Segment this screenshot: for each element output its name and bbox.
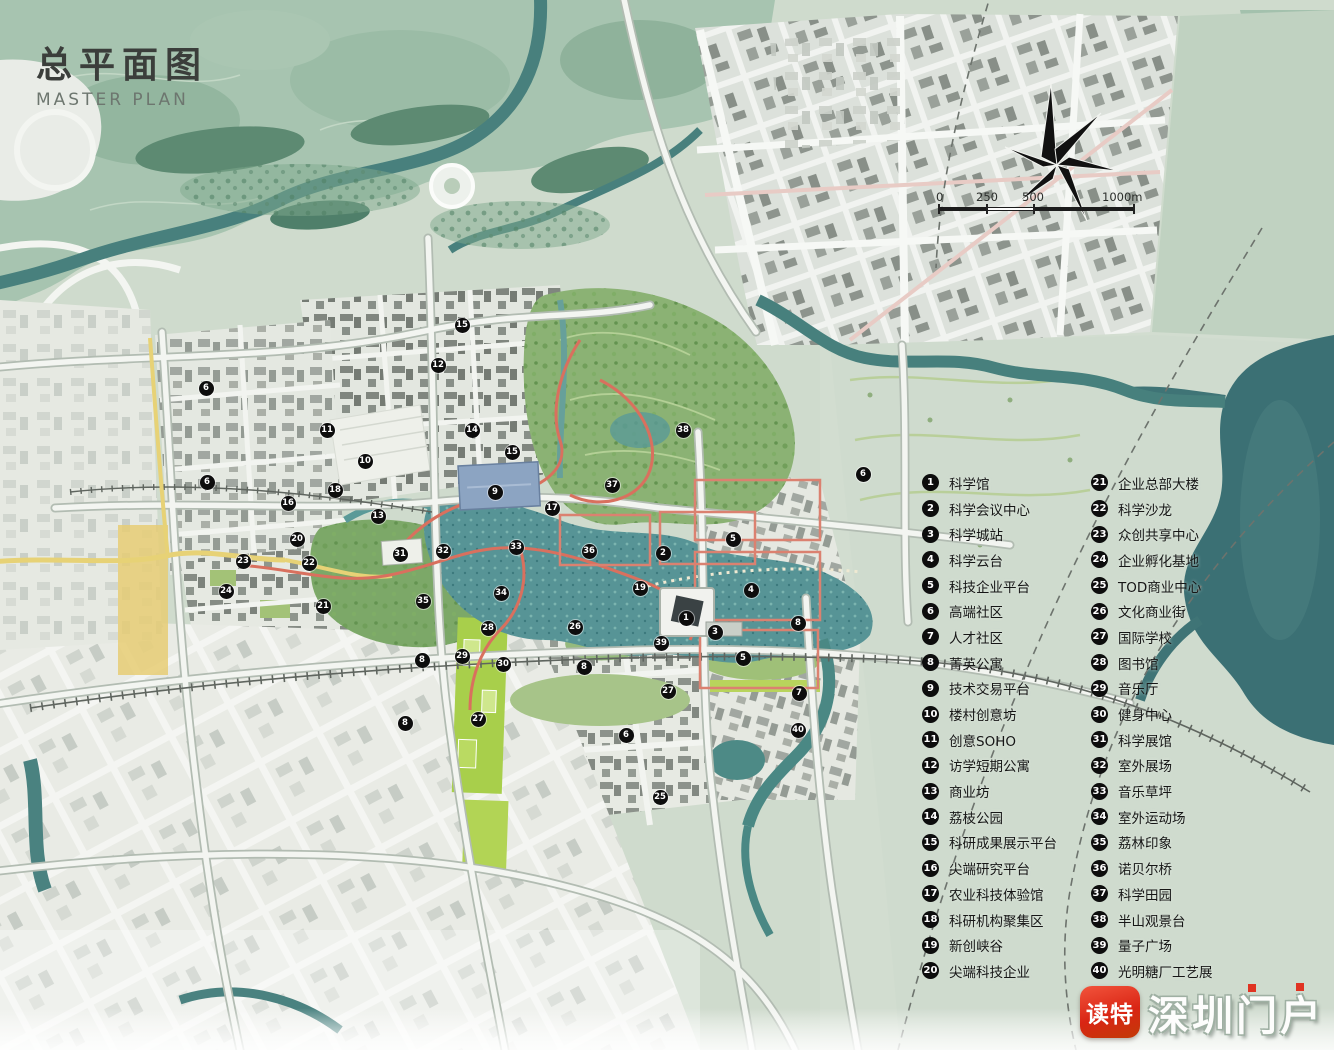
- legend-label: TOD商业中心: [1118, 576, 1201, 596]
- map-marker-16: 16: [281, 496, 296, 511]
- legend-label: 访学短期公寓: [949, 755, 1030, 775]
- map-marker-7: 7: [792, 686, 807, 701]
- map-marker-21: 21: [316, 599, 331, 614]
- map-marker-5: 5: [726, 532, 741, 547]
- map-marker-27: 27: [471, 712, 486, 727]
- legend-label: 高端社区: [949, 601, 1003, 621]
- legend-number-badge: 24: [1091, 551, 1108, 568]
- map-marker-11: 11: [320, 423, 335, 438]
- legend-label: 室外运动场: [1118, 807, 1186, 827]
- legend-item-23: 23众创共享中心: [1091, 521, 1213, 547]
- map-marker-22: 22: [302, 556, 317, 571]
- legend-number-badge: 4: [922, 551, 939, 568]
- map-marker-18: 18: [328, 483, 343, 498]
- legend-label: 菁英公寓: [949, 653, 1003, 673]
- legend-label: 科学沙龙: [1118, 499, 1172, 519]
- north-arrow-icon: [995, 75, 1125, 254]
- legend-label: 科学展馆: [1118, 730, 1172, 750]
- legend-label: 音乐厅: [1118, 678, 1159, 698]
- legend-item-8: 8菁英公寓: [922, 650, 1057, 676]
- legend-number-badge: 18: [922, 911, 939, 928]
- map-marker-15: 15: [505, 445, 520, 460]
- legend-label: 国际学校: [1118, 627, 1172, 647]
- legend-item-32: 32室外展场: [1091, 753, 1213, 779]
- map-marker-37: 37: [605, 478, 620, 493]
- legend-number-badge: 11: [922, 731, 939, 748]
- map-marker-31: 31: [393, 547, 408, 562]
- page-title-zh: 总平面图: [36, 46, 208, 86]
- map-marker-10: 10: [358, 454, 373, 469]
- legend-number-badge: 35: [1091, 834, 1108, 851]
- legend-number-badge: 19: [922, 937, 939, 954]
- legend-number-badge: 37: [1091, 885, 1108, 902]
- map-marker-25: 25: [653, 790, 668, 805]
- legend-number-badge: 29: [1091, 680, 1108, 697]
- legend-number-badge: 3: [922, 526, 939, 543]
- legend-item-1: 1科学馆: [922, 470, 1057, 496]
- scale-bar-line: [938, 207, 1134, 211]
- legend-label: 新创峡谷: [949, 935, 1003, 955]
- legend-item-33: 33音乐草坪: [1091, 778, 1213, 804]
- scale-label-500: 500: [1022, 190, 1044, 204]
- legend-number-badge: 13: [922, 783, 939, 800]
- legend-label: 企业总部大楼: [1118, 473, 1199, 493]
- map-marker-8: 8: [791, 616, 806, 631]
- legend-item-36: 36诺贝尔桥: [1091, 855, 1213, 881]
- legend-label: 量子广场: [1118, 935, 1172, 955]
- legend-number-badge: 32: [1091, 757, 1108, 774]
- map-marker-20: 20: [290, 532, 305, 547]
- map-marker-23: 23: [236, 554, 251, 569]
- legend-label: 室外展场: [1118, 755, 1172, 775]
- scale-label-1000: 1000m: [1102, 190, 1142, 204]
- map-marker-14: 14: [465, 423, 480, 438]
- legend-item-34: 34室外运动场: [1091, 804, 1213, 830]
- legend-number-badge: 31: [1091, 731, 1108, 748]
- legend-number-badge: 36: [1091, 860, 1108, 877]
- legend-number-badge: 34: [1091, 808, 1108, 825]
- legend-item-7: 7人才社区: [922, 624, 1057, 650]
- map-marker-9: 9: [488, 485, 503, 500]
- map-marker-8: 8: [577, 660, 592, 675]
- legend-label: 人才社区: [949, 627, 1003, 647]
- legend-number-badge: 16: [922, 860, 939, 877]
- map-marker-6: 6: [199, 381, 214, 396]
- legend-item-27: 27国际学校: [1091, 624, 1213, 650]
- map-marker-12: 12: [431, 358, 446, 373]
- watermark-accent: [1296, 983, 1304, 991]
- legend-label: 科研机构聚集区: [949, 910, 1044, 930]
- legend-item-5: 5科技企业平台: [922, 573, 1057, 599]
- legend-item-9: 9技术交易平台: [922, 676, 1057, 702]
- map-marker-39: 39: [654, 636, 669, 651]
- legend-item-17: 17农业科技体验馆: [922, 881, 1057, 907]
- legend-item-2: 2科学会议中心: [922, 496, 1057, 522]
- legend-label: 技术交易平台: [949, 678, 1030, 698]
- legend-number-badge: 10: [922, 706, 939, 723]
- legend-number-badge: 23: [1091, 526, 1108, 543]
- legend-label: 众创共享中心: [1118, 524, 1199, 544]
- legend-item-14: 14荔枝公园: [922, 804, 1057, 830]
- map-marker-3: 3: [708, 625, 723, 640]
- legend-item-30: 30健身中心: [1091, 701, 1213, 727]
- legend-column-2: 21企业总部大楼22科学沙龙23众创共享中心24企业孵化基地25TOD商业中心2…: [1091, 470, 1213, 984]
- legend-number-badge: 21: [1091, 474, 1108, 491]
- map-marker-33: 33: [509, 540, 524, 555]
- map-marker-15: 15: [455, 318, 470, 333]
- legend-label: 尖端科技企业: [949, 961, 1030, 981]
- legend-item-38: 38半山观景台: [1091, 907, 1213, 933]
- map-marker-29: 29: [455, 649, 470, 664]
- legend-item-25: 25TOD商业中心: [1091, 573, 1213, 599]
- scale-bar: 0 250 500 1000m: [936, 190, 1146, 224]
- legend-label: 科学城站: [949, 524, 1003, 544]
- legend-number-badge: 5: [922, 577, 939, 594]
- legend-label: 创意SOHO: [949, 730, 1016, 750]
- map-marker-30: 30: [496, 657, 511, 672]
- map-marker-27: 27: [661, 684, 676, 699]
- map-marker-6: 6: [200, 475, 215, 490]
- legend-item-18: 18科研机构聚集区: [922, 907, 1057, 933]
- legend-number-badge: 20: [922, 962, 939, 979]
- legend-number-badge: 12: [922, 757, 939, 774]
- legend-item-19: 19新创峡谷: [922, 932, 1057, 958]
- legend-label: 农业科技体验馆: [949, 884, 1044, 904]
- legend-number-badge: 8: [922, 654, 939, 671]
- map-marker-24: 24: [219, 584, 234, 599]
- legend-number-badge: 25: [1091, 577, 1108, 594]
- legend-item-39: 39量子广场: [1091, 932, 1213, 958]
- legend-label: 健身中心: [1118, 704, 1172, 724]
- legend-item-31: 31科学展馆: [1091, 727, 1213, 753]
- map-marker-28: 28: [481, 621, 496, 636]
- legend-item-16: 16尖端研究平台: [922, 855, 1057, 881]
- legend-item-35: 35荔林印象: [1091, 830, 1213, 856]
- master-plan-map: 总平面图 MASTER PLAN 0 250 500 1000m: [0, 0, 1334, 1050]
- legend-label: 尖端研究平台: [949, 858, 1030, 878]
- legend-item-29: 29音乐厅: [1091, 676, 1213, 702]
- map-marker-38: 38: [676, 423, 691, 438]
- legend-item-11: 11创意SOHO: [922, 727, 1057, 753]
- map-marker-35: 35: [416, 594, 431, 609]
- legend-label: 半山观景台: [1118, 910, 1186, 930]
- legend-item-10: 10楼村创意坊: [922, 701, 1057, 727]
- legend-item-6: 6高端社区: [922, 598, 1057, 624]
- legend-number-badge: 28: [1091, 654, 1108, 671]
- legend-number-badge: 7: [922, 628, 939, 645]
- legend-number-badge: 38: [1091, 911, 1108, 928]
- legend-number-badge: 6: [922, 603, 939, 620]
- map-marker-1: 1: [679, 611, 694, 626]
- dute-app-icon: 读特: [1080, 986, 1140, 1038]
- legend-item-37: 37科学田园: [1091, 881, 1213, 907]
- map-marker-13: 13: [371, 509, 386, 524]
- legend-label: 科研成果展示平台: [949, 832, 1057, 852]
- legend-number-badge: 15: [922, 834, 939, 851]
- legend-number-badge: 30: [1091, 706, 1108, 723]
- legend-column-1: 1科学馆2科学会议中心3科学城站4科学云台5科技企业平台6高端社区7人才社区8菁…: [922, 470, 1057, 984]
- legend-number-badge: 14: [922, 808, 939, 825]
- map-marker-40: 40: [791, 723, 806, 738]
- title-block: 总平面图 MASTER PLAN: [36, 46, 208, 110]
- scale-label-0: 0: [936, 190, 943, 204]
- legend-label: 荔林印象: [1118, 832, 1172, 852]
- map-marker-8: 8: [398, 716, 413, 731]
- legend-item-28: 28图书馆: [1091, 650, 1213, 676]
- legend-label: 科学云台: [949, 550, 1003, 570]
- legend-number-badge: 39: [1091, 937, 1108, 954]
- map-marker-2: 2: [656, 546, 671, 561]
- legend-label: 科技企业平台: [949, 576, 1030, 596]
- legend-number-badge: 17: [922, 885, 939, 902]
- watermark-accent: [1248, 984, 1256, 992]
- legend-item-40: 40光明糖厂工艺展: [1091, 958, 1213, 984]
- legend-item-20: 20尖端科技企业: [922, 958, 1057, 984]
- map-marker-19: 19: [633, 581, 648, 596]
- map-marker-17: 17: [545, 501, 560, 516]
- map-marker-6: 6: [856, 467, 871, 482]
- legend: 1科学馆2科学会议中心3科学城站4科学云台5科技企业平台6高端社区7人才社区8菁…: [922, 470, 1213, 984]
- legend-item-3: 3科学城站: [922, 521, 1057, 547]
- legend-label: 诺贝尔桥: [1118, 858, 1172, 878]
- legend-item-15: 15科研成果展示平台: [922, 830, 1057, 856]
- legend-number-badge: 27: [1091, 628, 1108, 645]
- legend-item-12: 12访学短期公寓: [922, 753, 1057, 779]
- map-marker-6: 6: [619, 728, 634, 743]
- map-marker-32: 32: [436, 544, 451, 559]
- watermark-wordmark: 深圳门户: [1148, 982, 1324, 1042]
- legend-label: 光明糖厂工艺展: [1118, 961, 1213, 981]
- legend-number-badge: 40: [1091, 962, 1108, 979]
- legend-label: 科学馆: [949, 473, 990, 493]
- legend-item-4: 4科学云台: [922, 547, 1057, 573]
- legend-label: 商业坊: [949, 781, 990, 801]
- legend-item-21: 21企业总部大楼: [1091, 470, 1213, 496]
- legend-label: 荔枝公园: [949, 807, 1003, 827]
- legend-label: 科学田园: [1118, 884, 1172, 904]
- legend-number-badge: 26: [1091, 603, 1108, 620]
- map-marker-34: 34: [494, 586, 509, 601]
- legend-number-badge: 22: [1091, 500, 1108, 517]
- page-title-en: MASTER PLAN: [36, 90, 208, 110]
- legend-item-24: 24企业孵化基地: [1091, 547, 1213, 573]
- map-marker-26: 26: [568, 620, 583, 635]
- legend-item-13: 13商业坊: [922, 778, 1057, 804]
- legend-label: 文化商业街: [1118, 601, 1186, 621]
- legend-item-26: 26文化商业街: [1091, 598, 1213, 624]
- map-marker-36: 36: [582, 544, 597, 559]
- legend-label: 楼村创意坊: [949, 704, 1017, 724]
- map-marker-8: 8: [415, 653, 430, 668]
- legend-number-badge: 2: [922, 500, 939, 517]
- watermark: 读特 深圳门户: [1080, 982, 1324, 1042]
- scale-label-250: 250: [976, 190, 998, 204]
- map-marker-4: 4: [744, 583, 759, 598]
- legend-number-badge: 9: [922, 680, 939, 697]
- legend-number-badge: 1: [922, 474, 939, 491]
- legend-item-22: 22科学沙龙: [1091, 496, 1213, 522]
- legend-number-badge: 33: [1091, 783, 1108, 800]
- legend-label: 企业孵化基地: [1118, 550, 1199, 570]
- legend-label: 音乐草坪: [1118, 781, 1172, 801]
- map-marker-5: 5: [736, 651, 751, 666]
- legend-label: 科学会议中心: [949, 499, 1030, 519]
- legend-label: 图书馆: [1118, 653, 1159, 673]
